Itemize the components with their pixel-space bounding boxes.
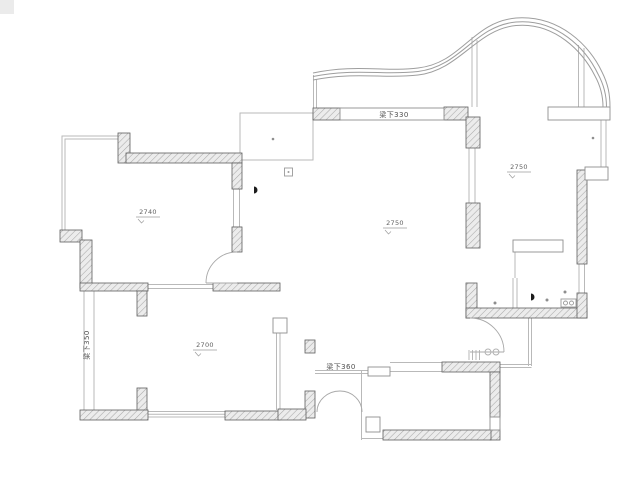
svg-text:2750: 2750: [386, 219, 404, 227]
floor-plan-canvas: 梁下330 梁下350 梁下360 2740 2750 2750 2700: [0, 0, 640, 480]
floor-plan-drawing: 梁下330 梁下350 梁下360 2740 2750 2750 2700: [0, 0, 640, 480]
height-label-bedroom-bottom-left: 2700: [193, 341, 217, 356]
door-bathroom: [470, 318, 504, 352]
beams-and-ledges: [273, 107, 610, 432]
doors: [206, 252, 504, 412]
height-label-bedroom-top-left: 2740: [136, 208, 160, 223]
wall-light-icon: [254, 187, 258, 194]
double-door-dining: [317, 391, 362, 412]
height-label-living-room: 2750: [383, 219, 407, 234]
wall-light-icon: [531, 294, 535, 301]
ceiling-height-labels: 2740 2750 2750 2700: [136, 163, 531, 356]
svg-text:2740: 2740: [139, 208, 157, 216]
entry-mat-icon: [469, 349, 499, 360]
doorbell-panel-icon: [285, 168, 293, 176]
svg-text:2750: 2750: [510, 163, 528, 171]
light-structure-lines: [62, 37, 606, 440]
walls: [60, 107, 587, 440]
beam-labels: 梁下330 梁下350 梁下360: [82, 110, 409, 371]
niche-outline: [240, 113, 313, 160]
svg-text:2700: 2700: [196, 341, 214, 349]
beam-label-top: 梁下330: [379, 110, 408, 119]
corner-artifact: [0, 0, 14, 14]
door-bedroom-top-left: [206, 252, 237, 283]
beam-label-bottom: 梁下360: [326, 362, 355, 371]
curved-balcony: [313, 18, 610, 107]
basin-icon: [561, 299, 576, 307]
ceiling-dots: [272, 137, 595, 305]
wardrobe-outline: [513, 240, 563, 252]
beam-label-left: 梁下350: [82, 330, 91, 359]
height-label-bedroom-right: 2750: [507, 163, 531, 178]
